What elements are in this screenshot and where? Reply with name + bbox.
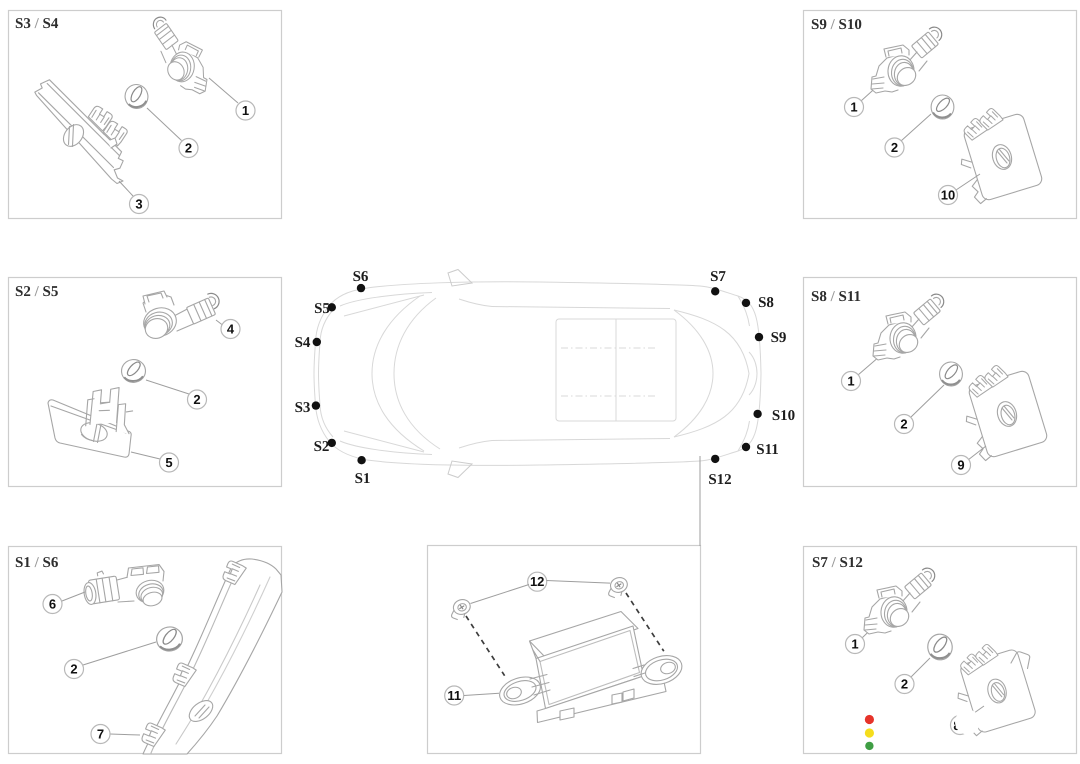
svg-text:1: 1: [851, 637, 858, 652]
svg-text:3: 3: [135, 197, 142, 212]
svg-text:7: 7: [97, 727, 104, 742]
svg-text:2: 2: [901, 677, 908, 692]
svg-text:S11: S11: [756, 442, 779, 458]
svg-text:5: 5: [165, 455, 172, 470]
svg-text:2: 2: [70, 662, 77, 677]
svg-text:S8 / S11: S8 / S11: [811, 289, 861, 305]
svg-text:S3 / S4: S3 / S4: [15, 16, 59, 32]
svg-text:S2: S2: [314, 439, 330, 455]
svg-text:9: 9: [957, 458, 964, 473]
svg-text:S6: S6: [353, 269, 369, 285]
svg-text:6: 6: [49, 597, 56, 612]
svg-text:S12: S12: [708, 472, 731, 488]
svg-text:11: 11: [447, 688, 461, 703]
svg-text:1: 1: [847, 374, 854, 389]
svg-text:2: 2: [193, 392, 200, 407]
svg-text:S1: S1: [355, 471, 371, 487]
svg-text:S9 / S10: S9 / S10: [811, 17, 862, 33]
svg-text:S1 / S6: S1 / S6: [15, 555, 59, 571]
svg-text:12: 12: [530, 574, 544, 589]
svg-text:S8: S8: [758, 295, 774, 311]
svg-text:S2 / S5: S2 / S5: [15, 284, 58, 300]
svg-text:2: 2: [891, 140, 898, 155]
svg-text:S10: S10: [772, 408, 795, 424]
svg-text:S3: S3: [295, 400, 311, 416]
svg-text:S7 / S12: S7 / S12: [812, 555, 863, 571]
svg-text:1: 1: [242, 103, 249, 118]
svg-text:2: 2: [900, 417, 907, 432]
svg-text:4: 4: [227, 322, 235, 337]
svg-text:2: 2: [185, 141, 192, 156]
svg-text:S5: S5: [314, 301, 330, 317]
svg-text:1: 1: [850, 100, 857, 115]
svg-text:S4: S4: [295, 335, 311, 351]
svg-text:10: 10: [941, 188, 955, 203]
svg-text:S9: S9: [771, 330, 787, 346]
svg-text:S7: S7: [710, 269, 726, 285]
